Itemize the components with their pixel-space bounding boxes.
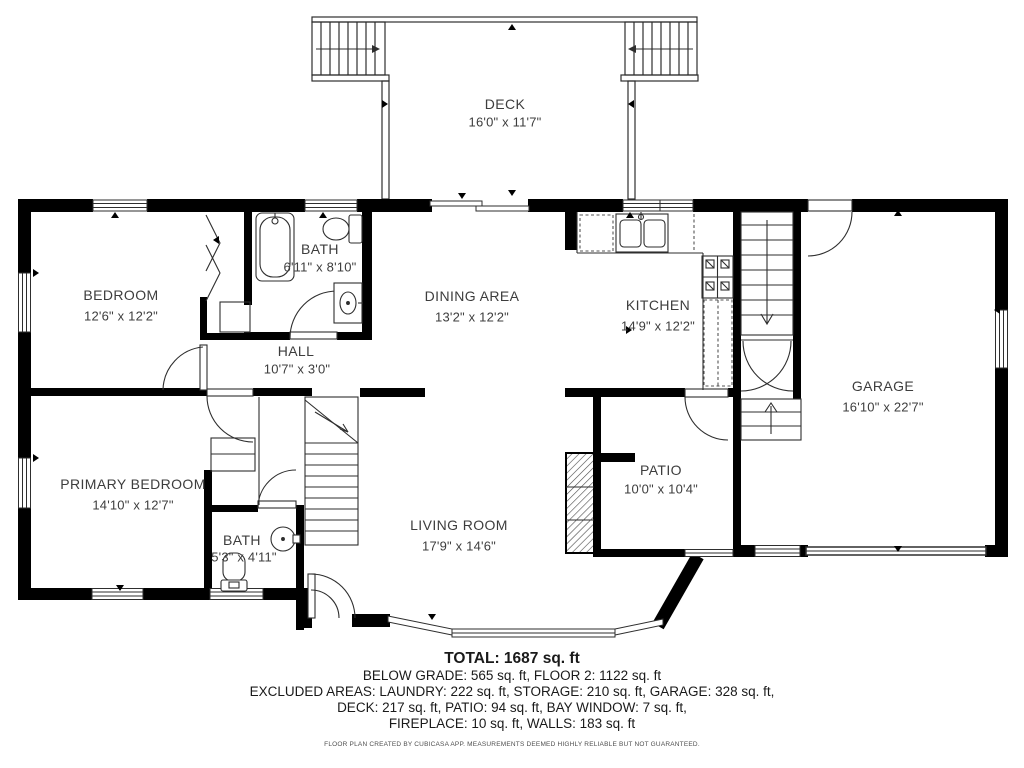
disclaimer-text: FLOOR PLAN CREATED BY CUBICASA APP. MEAS… xyxy=(0,741,1024,748)
refrigerator xyxy=(704,300,732,386)
wall-markers xyxy=(33,193,1000,620)
bathtub xyxy=(256,213,294,281)
window xyxy=(755,546,800,557)
window xyxy=(19,273,31,332)
deck-structure xyxy=(312,17,698,199)
door-bath-lower xyxy=(258,470,296,508)
stairs-kitchen xyxy=(741,212,793,335)
summary-below-grade: BELOW GRADE: 565 sq. ft, FLOOR 2: 1122 s… xyxy=(0,668,1024,684)
door-bath-upper xyxy=(290,291,337,339)
vanity-sink xyxy=(334,283,363,323)
floor-plan-drawing xyxy=(0,0,1024,655)
summary-total: TOTAL: 1687 sq. ft xyxy=(0,650,1024,668)
deck-stairs-right xyxy=(621,22,698,199)
kitchen-sink xyxy=(616,212,668,252)
door-primary-bedroom xyxy=(207,389,253,442)
floor-plan-page: DECK 16'0" x 11'7" BEDROOM 12'6" x 12'2"… xyxy=(0,0,1024,768)
bay-window xyxy=(388,616,663,637)
sliding-door xyxy=(430,201,529,211)
stove xyxy=(702,256,733,298)
window xyxy=(19,458,31,508)
toilet xyxy=(323,215,362,243)
round-sink xyxy=(271,527,300,551)
stairs-basement xyxy=(305,397,358,545)
entry-steps xyxy=(741,399,801,440)
toilet xyxy=(221,553,247,591)
fireplace xyxy=(566,453,594,553)
bath-lower-fixtures xyxy=(221,527,300,591)
window xyxy=(623,200,693,211)
window xyxy=(93,200,147,211)
windows xyxy=(19,200,1008,637)
primary-closet xyxy=(211,397,259,505)
window xyxy=(685,550,733,557)
summary-excluded-3: FIREPLACE: 10 sq. ft, WALLS: 183 sq. ft xyxy=(0,716,1024,732)
door-bedroom xyxy=(163,345,207,390)
window xyxy=(305,200,357,211)
window xyxy=(996,310,1008,368)
deck-stairs-left xyxy=(312,22,389,199)
door-patio xyxy=(685,389,728,440)
door-front xyxy=(308,574,355,618)
deck-markers xyxy=(382,24,634,196)
door-garage-entry xyxy=(808,200,852,256)
window xyxy=(92,589,143,600)
summary-footer: TOTAL: 1687 sq. ft BELOW GRADE: 565 sq. … xyxy=(0,650,1024,748)
summary-excluded-2: DECK: 217 sq. ft, PATIO: 94 sq. ft, BAY … xyxy=(0,700,1024,716)
bath-upper-fixtures xyxy=(256,213,363,323)
walls xyxy=(18,199,1008,630)
door-landing-pair xyxy=(741,340,793,391)
bedroom-closet-bifold xyxy=(206,215,250,332)
kitchen-fixtures xyxy=(577,212,733,390)
bay-corner-wall xyxy=(658,556,698,626)
summary-excluded-1: EXCLUDED AREAS: LAUNDRY: 222 sq. ft, STO… xyxy=(0,684,1024,700)
